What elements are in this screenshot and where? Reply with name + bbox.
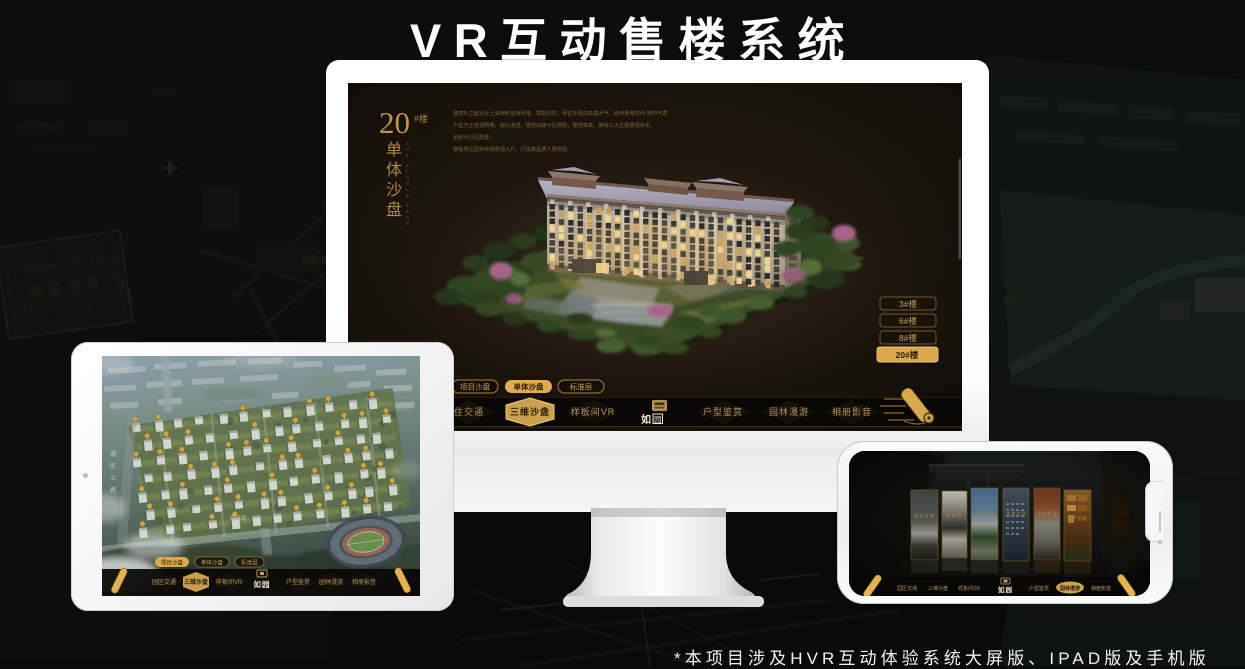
svg-text:园区交通: 园区交通 (152, 578, 176, 586)
svg-text:三维沙盘: 三维沙盘 (928, 585, 948, 592)
svg-text:三维沙盘: 三维沙盘 (184, 578, 208, 586)
svg-text:户型鉴赏: 户型鉴赏 (1029, 585, 1049, 592)
svg-text:E: E (406, 153, 409, 158)
svg-text:3#楼: 3#楼 (899, 299, 917, 309)
svg-text:沙: 沙 (386, 182, 402, 199)
svg-text:相册影音: 相册影音 (352, 578, 376, 586)
svg-text:样板间VR: 样板间VR (571, 406, 616, 417)
svg-text:如: 如 (641, 413, 651, 426)
svg-text:单体沙盘: 单体沙盘 (201, 559, 224, 567)
svg-text:建筑外立面设计上采用新亚洲风格，搭配石材，保证外观的高端大气: 建筑外立面设计上采用新亚洲风格，搭配石材，保证外观的高端大气，延续典雅现代·简约… (453, 109, 667, 117)
svg-text:相册影音: 相册影音 (832, 406, 872, 417)
svg-text:相册影音: 相册影音 (1091, 585, 1111, 592)
svg-text:全龄化社区配套；: 全龄化社区配套； (453, 133, 495, 141)
svg-text:住交通: 住交通 (454, 406, 484, 417)
svg-text:8#楼: 8#楼 (899, 333, 917, 343)
svg-text:S: S (406, 163, 409, 168)
svg-text:园区交通: 园区交通 (897, 585, 917, 592)
svg-text:如园: 如园 (254, 579, 271, 589)
svg-text:N: N (406, 175, 409, 180)
svg-text:园林漫游: 园林漫游 (769, 406, 809, 417)
svg-text:示范区规划图: 示范区规划图 (14, 122, 62, 132)
svg-text:户型方正通透明亮，南北通透，理性动静分区规划，赠送率高，拥有: 户型方正通透明亮，南北通透，理性动静分区规划，赠送率高，拥有三大主题景观体系， (453, 121, 655, 129)
svg-text:户型鉴赏: 户型鉴赏 (286, 578, 310, 586)
svg-text:S: S (406, 203, 409, 208)
svg-text:单体沙盘: 单体沙盘 (514, 382, 544, 392)
svg-text:城市展厅: 城市展厅 (150, 89, 178, 98)
svg-text:项目沙盘: 项目沙盘 (460, 382, 490, 392)
svg-text:三维沙盘: 三维沙盘 (510, 406, 550, 417)
svg-text:T: T (406, 141, 409, 146)
svg-text:样板间VR: 样板间VR (958, 585, 980, 592)
svg-text:楼栋周边园林环绕景观入户，打造高品质人居体验: 楼栋周边园林环绕景观入户，打造高品质人居体验 (453, 145, 568, 153)
svg-text:20#楼: 20#楼 (896, 350, 919, 360)
svg-text:盘: 盘 (386, 200, 402, 219)
svg-text:E: E (406, 193, 409, 198)
svg-text:体: 体 (386, 161, 402, 179)
svg-text:A: A (406, 209, 409, 214)
svg-text:I: I (406, 169, 407, 174)
svg-text:如园: 如园 (998, 585, 1013, 594)
svg-text:园林漫游: 园林漫游 (319, 578, 343, 586)
svg-text:#楼: #楼 (414, 113, 428, 124)
svg-text:样板间VR: 样板间VR (216, 578, 243, 586)
svg-text:园林漫游: 园林漫游 (1060, 585, 1080, 592)
svg-text:D: D (406, 221, 410, 226)
svg-text:N: N (406, 215, 409, 220)
svg-text:标准层: 标准层 (241, 559, 258, 567)
svg-text:园: 园 (654, 415, 662, 424)
svg-text:单: 单 (386, 141, 402, 159)
svg-text:项目沙盘: 项目沙盘 (161, 559, 184, 567)
svg-text:H: H (406, 147, 409, 152)
svg-text:20: 20 (379, 105, 410, 140)
svg-text:L: L (406, 187, 409, 192)
svg-text:G: G (406, 181, 410, 186)
svg-text:标准层: 标准层 (570, 382, 593, 392)
svg-text:户型鉴赏: 户型鉴赏 (703, 406, 743, 417)
svg-text:6#楼: 6#楼 (899, 316, 917, 326)
